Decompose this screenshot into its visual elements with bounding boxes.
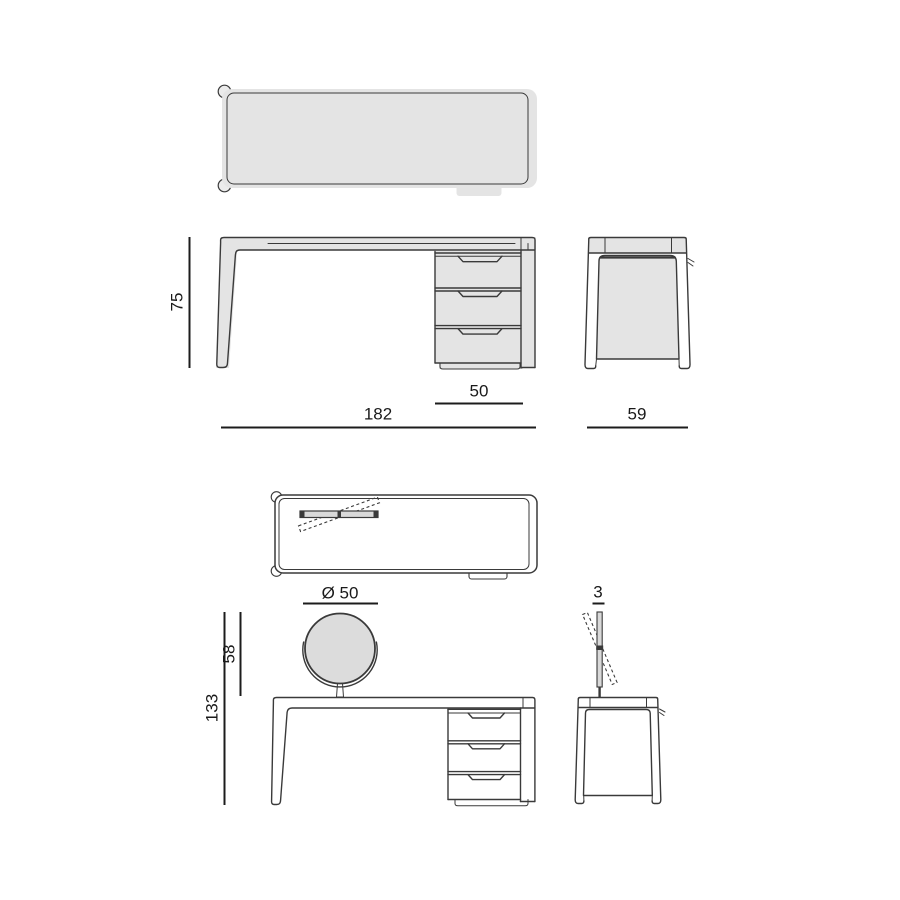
vanity-front-view (272, 614, 535, 806)
desk-side-view (585, 238, 694, 369)
cable-hook-icon (688, 259, 694, 267)
mirror-front (305, 614, 375, 684)
vanity-top-view (271, 492, 537, 579)
dimension-label-desk-height: 75 (169, 293, 186, 312)
technical-drawing-canvas: 75 182 50 59 Ø 50 58 133 3 (0, 0, 900, 900)
drawer-handle-icon (468, 713, 505, 718)
drawer-handle-icon (468, 744, 505, 749)
desk-top-view (218, 85, 537, 196)
dimension-label-desk-depth: 59 (628, 406, 647, 423)
desk-top-surface (275, 495, 537, 573)
dimension-label-mirror-diameter: Ø 50 (322, 585, 359, 602)
desk-top-surface (222, 89, 537, 188)
dimension-label-mirror-height: 58 (221, 645, 238, 664)
vanity-side-view (575, 612, 665, 804)
dimension-label-desk-width: 182 (364, 406, 392, 423)
mirror-stem (337, 684, 344, 698)
mirror-top-view (300, 511, 378, 518)
desk-front-outline (272, 698, 535, 805)
drawer-unit-front (448, 708, 528, 806)
side-outline (578, 698, 661, 804)
mirror-pivot-icon (338, 512, 342, 518)
dimension-label-mirror-thickness: 3 (593, 584, 602, 601)
dimension-label-total-height: 133 (204, 694, 221, 722)
desk-front-view (216, 237, 536, 369)
drawing-svg (0, 0, 900, 900)
mirror-pivot-icon (596, 646, 603, 651)
cable-hook-icon (660, 709, 666, 716)
dimension-label-drawer-width: 50 (470, 383, 489, 400)
drawer-handle-icon (468, 775, 505, 780)
